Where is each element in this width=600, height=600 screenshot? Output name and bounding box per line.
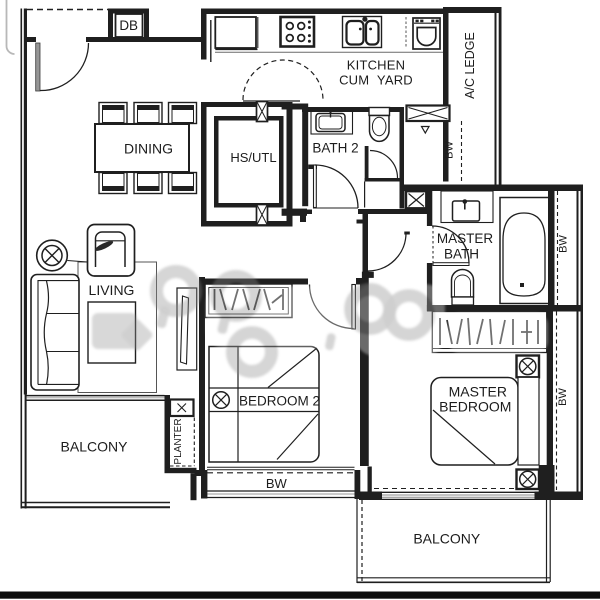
svg-text:MASTER: MASTER [449, 384, 507, 400]
svg-text:DB: DB [119, 18, 138, 33]
svg-text:PLANTER: PLANTER [173, 418, 184, 464]
svg-text:BATH: BATH [444, 247, 479, 262]
svg-text:CUM YARD: CUM YARD [339, 73, 413, 88]
svg-text:BEDROOM 2: BEDROOM 2 [239, 394, 320, 409]
svg-text:KITCHEN: KITCHEN [347, 58, 405, 73]
svg-text:BEDROOM: BEDROOM [439, 399, 511, 415]
svg-text:BW: BW [558, 235, 570, 253]
svg-text:BATH 2: BATH 2 [312, 141, 358, 156]
svg-text:HS/UTL: HS/UTL [230, 150, 276, 165]
svg-text:MASTER: MASTER [437, 231, 494, 246]
svg-text:DINING: DINING [124, 141, 173, 157]
svg-text:A/C LEDGE: A/C LEDGE [463, 32, 477, 99]
svg-text:LIVING: LIVING [89, 282, 135, 298]
svg-text:BALCONY: BALCONY [413, 531, 481, 547]
svg-text:BALCONY: BALCONY [61, 439, 129, 455]
svg-text:BW: BW [444, 141, 456, 159]
svg-text:BW: BW [266, 476, 288, 491]
svg-text:BW: BW [557, 388, 569, 406]
